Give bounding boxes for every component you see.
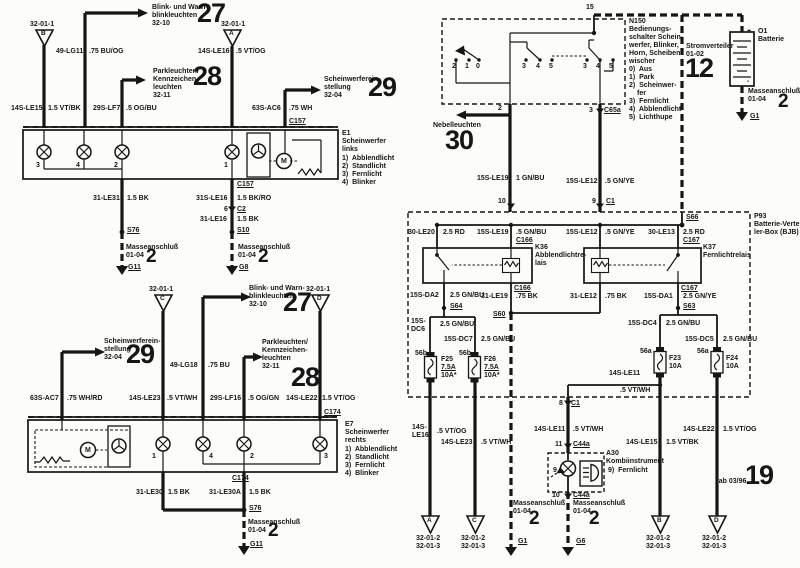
- pin-number: 8: [559, 400, 563, 407]
- component-desc: Batterie: [758, 36, 784, 43]
- component-desc: 3) Fernlicht: [345, 462, 385, 469]
- switch-pos: 3: [522, 63, 526, 70]
- splice: S63: [683, 303, 695, 310]
- note: *ab 03/96: [716, 478, 746, 485]
- component-desc: 4) Blinker: [345, 470, 379, 477]
- wire-id: LE16: [412, 432, 429, 439]
- page-ref: 32-01-1: [306, 286, 330, 293]
- pin-number: 9: [553, 467, 557, 474]
- wire-id: 15S-DC5: [685, 336, 714, 343]
- component-desc: lais: [535, 260, 547, 267]
- terminal: 56b: [459, 350, 471, 357]
- ground-label: 01-04: [248, 527, 266, 534]
- component-desc: wischer: [629, 58, 655, 65]
- wire-color: .5 VT/OG: [236, 48, 266, 55]
- wire-id: 14S-LE22: [683, 426, 715, 433]
- fuse-rating: 10A: [669, 363, 682, 370]
- bulb-number: 3: [36, 162, 40, 169]
- fuse-id: F24: [726, 355, 738, 362]
- wire-color: .75 BK: [516, 293, 538, 300]
- ground-id: G1: [518, 538, 527, 545]
- page-ref: 32-01-1: [221, 21, 245, 28]
- component-desc: 2) Scheinwer-: [629, 82, 676, 89]
- pin-number: 3: [589, 107, 593, 114]
- wire-id: 14S-LE11: [534, 426, 565, 433]
- wire-id: 15S-DA2: [410, 292, 439, 299]
- pin-number: 9: [592, 198, 596, 205]
- labels-layer: 32-01-1BBlink- und Warn-blinkleuchten32-…: [0, 0, 800, 568]
- bulb-number: 4: [76, 162, 80, 169]
- wire-color: 2.5 GN/BU: [440, 321, 474, 328]
- triangle-letter: C: [160, 296, 165, 303]
- fuse-rating: 7.5A: [441, 364, 456, 371]
- splice: S10: [237, 227, 249, 234]
- wire-color: .75 WH: [289, 105, 312, 112]
- wire-color: .5 VT/OG: [437, 428, 467, 435]
- dest-blinker-ref: 32-10: [152, 20, 170, 27]
- bulb-number: 1: [224, 162, 228, 169]
- wire-color: .5 VT/WH: [481, 439, 511, 446]
- fuse-rating: 7.5A: [484, 364, 499, 371]
- bulb-number: 2: [250, 453, 254, 460]
- motor-letter: M: [281, 158, 287, 165]
- component-desc: 0) Aus: [629, 66, 652, 73]
- wire-id: 31-LE31: [93, 195, 120, 202]
- connector: C157: [289, 118, 306, 125]
- wire-id: 14S-LE15: [626, 439, 658, 446]
- wire-color: 1.5 VT/BK: [48, 105, 81, 112]
- big-ref-2: 2: [146, 247, 156, 266]
- big-ref-2: 2: [778, 92, 788, 111]
- component-desc: Horn, Scheiben-: [629, 50, 683, 57]
- battery-minus: -: [747, 78, 749, 85]
- switch-pos: 0: [476, 63, 480, 70]
- connector: C157: [237, 181, 254, 188]
- ground-label: Masseanschluß: [573, 500, 625, 507]
- page-ref: 32-01-3: [702, 543, 726, 550]
- dest-park-line2: Kennzeichen-: [262, 347, 308, 354]
- component-desc: fer: [637, 90, 646, 97]
- wire-id: 29S-LF16: [210, 395, 241, 402]
- switch-pos: 3: [583, 63, 587, 70]
- ground-label: 01-04: [748, 96, 766, 103]
- component-desc: Abblendlichtre-: [535, 252, 586, 259]
- component-desc: schalter Schein-: [629, 34, 683, 41]
- connector: C167: [683, 237, 700, 244]
- dest-park-line1: Parkleuchten/: [262, 339, 308, 346]
- connector: C167: [681, 285, 698, 292]
- ground-id: G11: [250, 541, 263, 548]
- battery-plus: +: [747, 28, 751, 35]
- pin-number: 2: [498, 105, 502, 112]
- wire-id: 15S-LE19: [477, 229, 509, 236]
- wire-id: 14S-LE11: [609, 370, 640, 377]
- dest-blinker-ref: 32-10: [249, 301, 267, 308]
- dest-park-ref: 32-11: [153, 92, 171, 99]
- dest-park-line3: leuchten: [262, 355, 291, 362]
- wire-id: 31-LE19: [481, 293, 508, 300]
- pin-number: 6: [224, 206, 228, 213]
- wire-color: .75 BU/OG: [89, 48, 124, 55]
- switch-pos: 2: [452, 63, 456, 70]
- component-desc: 4) Abblendlicht: [629, 106, 681, 113]
- dest-leveling-ref: 32-04: [324, 92, 342, 99]
- terminal: 56b: [415, 350, 427, 357]
- big-ref-2: 2: [258, 247, 268, 266]
- connector: C44a: [573, 492, 590, 499]
- wire-id: 14S-LE23: [441, 439, 473, 446]
- wire-color: 1.5 VT/BK: [666, 439, 699, 446]
- component-desc: 1) Park: [629, 74, 654, 81]
- pin-number: 10: [498, 198, 506, 205]
- triangle-letter: A: [229, 31, 234, 38]
- wire-id: 31-LE16: [200, 216, 227, 223]
- splice: S64: [450, 303, 462, 310]
- dest-park-line2: Kennzeichen-: [153, 76, 199, 83]
- component-desc: Batterie-Vertei-: [754, 221, 800, 228]
- component-desc: rechts: [345, 437, 366, 444]
- fuse-id: F23: [669, 355, 681, 362]
- wire-color: .5 VT/WH: [167, 395, 197, 402]
- big-ref-27: 27: [283, 289, 311, 316]
- terminal: 56a: [640, 348, 652, 355]
- wire-color: 2.5 GN/YE: [683, 293, 716, 300]
- connector: C174: [324, 409, 341, 416]
- wire-color: 2.5 GN/BU: [723, 336, 757, 343]
- switch-pos: 5: [609, 63, 613, 70]
- wire-id: 31-LE30: [136, 489, 163, 496]
- wire-id: 14S-LE23: [129, 395, 161, 402]
- fuse-id: F25: [441, 356, 453, 363]
- big-ref-2: 2: [589, 509, 599, 528]
- power-dist-label: Stromverteiler: [686, 43, 733, 50]
- component-desc: 1) Abblendlicht: [342, 155, 394, 162]
- ground-label: 01-04: [126, 252, 144, 259]
- page-ref: 32-01-2: [646, 535, 670, 542]
- component-id: A30: [606, 450, 619, 457]
- fuse-id: F26: [484, 356, 496, 363]
- component-desc: Bedienungs-: [629, 26, 671, 33]
- component-desc: 1) Abblendlicht: [345, 446, 397, 453]
- bulb-number: 1: [152, 453, 156, 460]
- wire-color: .5 OG/GN: [248, 395, 279, 402]
- page-ref: 32-01-2: [461, 535, 485, 542]
- pin-number: 15: [586, 4, 594, 11]
- wire-id: 31-LE30A: [209, 489, 241, 496]
- dest-blinker-line2: blinkleuchten: [152, 12, 197, 19]
- wire-id: 49-LG11: [56, 48, 83, 55]
- wire-id: 63S-AC6: [252, 105, 281, 112]
- bulb-number: 4: [209, 453, 213, 460]
- connector: C44a: [573, 441, 590, 448]
- connector: C166: [516, 237, 533, 244]
- pin-number: 11: [555, 441, 562, 448]
- component-id: N150: [629, 18, 646, 25]
- wire-color: 2.5 GN/BU: [450, 292, 484, 299]
- page-ref: 32-01-2: [702, 535, 726, 542]
- wire-color: 1.5 BK: [249, 489, 271, 496]
- wire-id: 30-LE20: [408, 229, 435, 236]
- wire-id: 29S-LF7: [93, 105, 120, 112]
- page-ref: 32-01-3: [416, 543, 440, 550]
- wire-color: .75 BK: [605, 293, 627, 300]
- ground-id: G1: [750, 113, 759, 120]
- wire-color: .75 WH/RD: [67, 395, 102, 402]
- wire-color: .5 OG/BU: [126, 105, 157, 112]
- component-desc: Fernlichtrelais: [703, 252, 751, 259]
- splice: S60: [493, 311, 505, 318]
- dest-park-line3: leuchten: [153, 84, 182, 91]
- wire-color: 1.5 BK: [237, 216, 259, 223]
- component-id: K37: [703, 244, 716, 251]
- component-desc: 4) Blinker: [342, 179, 376, 186]
- page-ref: 32-01-2: [416, 535, 440, 542]
- splice: S76: [249, 505, 261, 512]
- wire-id: 15S-DA1: [644, 293, 673, 300]
- terminal: 56a: [697, 348, 709, 355]
- big-ref-29: 29: [126, 341, 154, 368]
- wire-id: 15S-DC7: [444, 336, 473, 343]
- wire-id: 14S-LE22: [286, 395, 318, 402]
- page-ref: 32-01-1: [149, 286, 173, 293]
- wire-color: 1.5 VT/OG: [723, 426, 756, 433]
- wire-id: 31S-LE16: [196, 195, 228, 202]
- component-desc: 5) Lichthupe: [629, 114, 673, 121]
- wire-color: 1.5 BK/RO: [237, 195, 271, 202]
- ground-id: G11: [128, 264, 141, 271]
- dest-leveling-ref: 32-04: [104, 354, 122, 361]
- splice: S76: [127, 227, 139, 234]
- wire-id: 14S-LE15: [11, 105, 43, 112]
- big-ref-2: 2: [529, 509, 539, 528]
- switch-pos: 5: [549, 63, 553, 70]
- wire-color: 2.5 GN/BU: [666, 320, 700, 327]
- ground-id: G8: [239, 264, 248, 271]
- ground-label: Masseanschluß: [513, 500, 565, 507]
- component-desc: Scheinwerfer: [342, 138, 386, 145]
- component-id: K36: [535, 244, 548, 251]
- component-desc: Kombiinstrument: [606, 458, 664, 465]
- connector: C2: [237, 206, 246, 213]
- ground-label: Masseanschluß: [748, 88, 800, 95]
- big-ref-28: 28: [291, 364, 319, 391]
- motor-letter: M: [85, 447, 91, 454]
- wire-color: .5 GN/YE: [605, 229, 635, 236]
- wire-color: 1.5 BK: [168, 489, 190, 496]
- component-desc: 3) Fernlicht: [629, 98, 669, 105]
- triangle-letter: A: [427, 518, 432, 525]
- wire-color: .5 GN/BU: [516, 229, 546, 236]
- triangle-letter: B: [657, 518, 662, 525]
- component-id: O1: [758, 28, 767, 35]
- wire-color: .5 VT/WH: [620, 387, 650, 394]
- big-ref-19: 19: [745, 462, 773, 489]
- switch-pos: 1: [465, 63, 469, 70]
- component-desc: 3) Fernlicht: [342, 171, 382, 178]
- wire-color: 1 GN/BU: [516, 175, 544, 182]
- wire-id: 63S-AC7: [30, 395, 59, 402]
- page-ref: 32-01-3: [646, 543, 670, 550]
- wire-color: .5 VT/WH: [573, 426, 603, 433]
- connector: C174: [232, 475, 249, 482]
- component-desc: 2) Standlicht: [342, 163, 386, 170]
- component-desc: links: [342, 146, 358, 153]
- triangle-letter: D: [317, 296, 322, 303]
- big-ref-29: 29: [368, 74, 396, 101]
- triangle-letter: D: [714, 518, 719, 525]
- component-desc: 9) Fernlicht: [608, 467, 648, 474]
- connector: C1: [606, 198, 615, 205]
- wire-id: 14S-: [412, 424, 427, 431]
- wire-id: 15S-: [411, 318, 426, 325]
- component-desc: 2) Standlicht: [345, 454, 389, 461]
- big-ref-12: 12: [685, 55, 713, 82]
- triangle-letter: B: [41, 31, 46, 38]
- connector: C166: [514, 285, 531, 292]
- wiring-diagram-page: 32-01-1BBlink- und Warn-blinkleuchten32-…: [0, 0, 800, 568]
- wire-color: .5 GN/YE: [605, 178, 635, 185]
- ground-id: G6: [576, 538, 585, 545]
- big-ref-30: 30: [445, 127, 473, 154]
- component-desc: ler-Box (BJB): [754, 229, 799, 236]
- fuse-rating: 10A: [726, 363, 739, 370]
- big-ref-28: 28: [193, 63, 221, 90]
- page-ref: 32-01-1: [30, 21, 54, 28]
- switch-pos: 4: [536, 63, 540, 70]
- connector: C1: [571, 400, 580, 407]
- wire-color: 2.5 RD: [443, 229, 465, 236]
- wire-color: 2.5 GN/BU: [481, 336, 515, 343]
- wire-id: 15S-DC4: [628, 320, 657, 327]
- wire-id: 30-LE13: [648, 229, 675, 236]
- dest-park-ref: 32-11: [262, 363, 280, 370]
- dest-leveling-line2: stellung: [324, 84, 351, 91]
- wire-id: 15S-LE12: [566, 229, 598, 236]
- wire-color: 2.5 RD: [683, 229, 705, 236]
- connector: C65a: [604, 107, 621, 114]
- wire-color: .75 BU: [208, 362, 230, 369]
- fuse-rating: 10A*: [484, 372, 500, 379]
- page-ref: 32-01-3: [461, 543, 485, 550]
- wire-color: 1.5 BK: [127, 195, 149, 202]
- component-desc: werfer, Blinker,: [629, 42, 679, 49]
- wire-id: 15S-LE19: [477, 175, 509, 182]
- wire-id: 15S-LE12: [566, 178, 598, 185]
- component-desc: Scheinwerfer: [345, 429, 389, 436]
- big-ref-2: 2: [268, 521, 278, 540]
- wire-id: 14S-LE16: [198, 48, 230, 55]
- wire-id: DC6: [411, 326, 425, 333]
- bulb-number: 3: [324, 453, 328, 460]
- component-id: E1: [342, 130, 351, 137]
- triangle-letter: C: [472, 518, 477, 525]
- wire-id: 49-LG18: [170, 362, 198, 369]
- pin-number: 10: [552, 492, 560, 499]
- component-id: E7: [345, 421, 354, 428]
- bulb-number: 2: [114, 162, 118, 169]
- wire-color: 1.5 VT/OG: [322, 395, 355, 402]
- fuse-rating: 10A*: [441, 372, 457, 379]
- component-id: P93: [754, 213, 766, 220]
- switch-pos: 4: [596, 63, 600, 70]
- ground-label: 01-04: [238, 252, 256, 259]
- splice: S66: [686, 214, 698, 221]
- wire-id: 31-LE12: [570, 293, 597, 300]
